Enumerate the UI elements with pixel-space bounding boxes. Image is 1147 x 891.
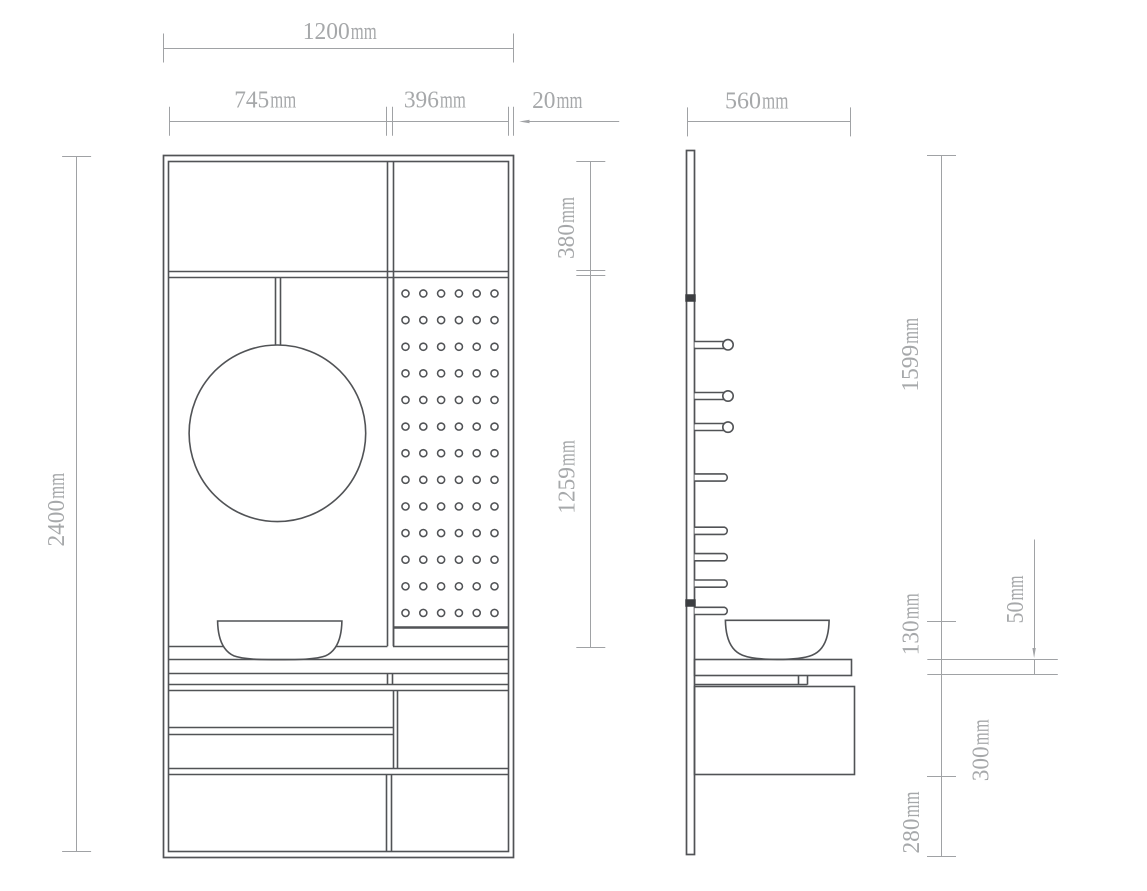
svg-text:20mm: 20mm bbox=[532, 87, 582, 114]
svg-text:1259mm: 1259mm bbox=[554, 440, 581, 514]
svg-text:380mm: 380mm bbox=[553, 197, 580, 259]
svg-text:560mm: 560mm bbox=[725, 87, 788, 114]
svg-text:745mm: 745mm bbox=[234, 86, 296, 113]
svg-text:280mm: 280mm bbox=[898, 792, 925, 854]
svg-text:1599mm: 1599mm bbox=[897, 318, 924, 392]
svg-text:130mm: 130mm bbox=[898, 593, 925, 655]
svg-text:50mm: 50mm bbox=[1002, 576, 1029, 624]
svg-text:300mm: 300mm bbox=[968, 719, 995, 781]
svg-text:396mm: 396mm bbox=[404, 86, 466, 113]
svg-text:1200mm: 1200mm bbox=[303, 18, 377, 45]
svg-text:2400mm: 2400mm bbox=[43, 473, 70, 547]
